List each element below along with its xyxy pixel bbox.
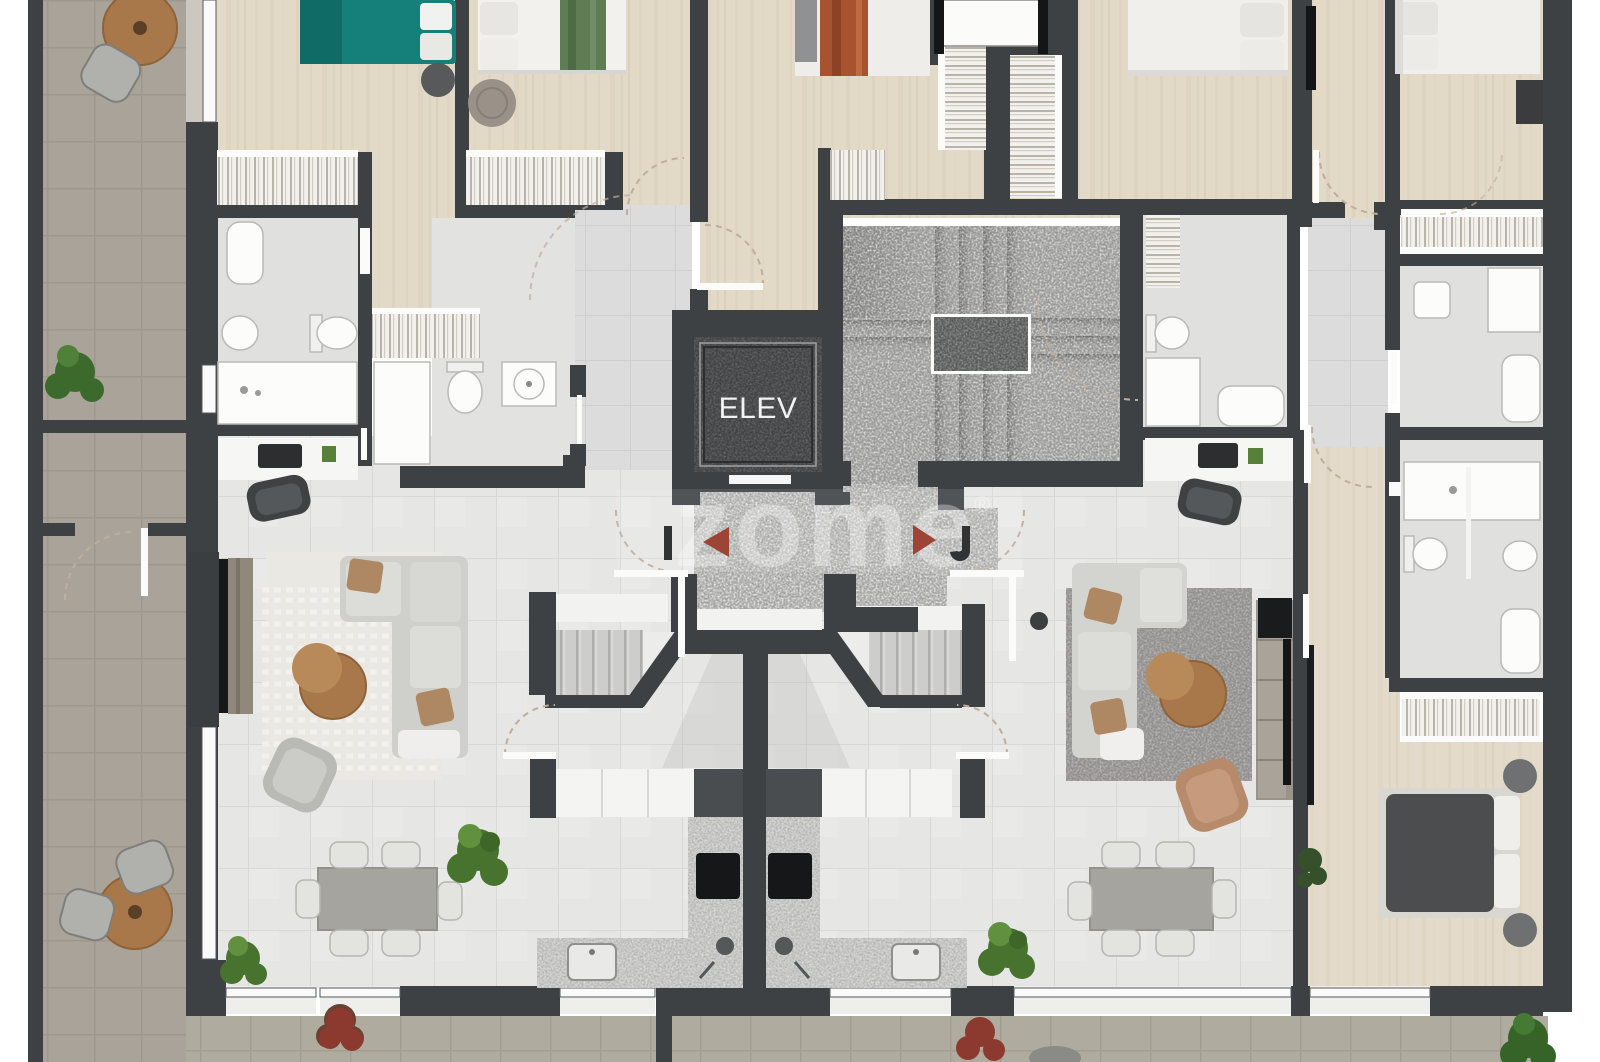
svg-text:®: ® <box>974 492 990 517</box>
svg-text:zome: zome <box>674 464 977 591</box>
svg-text:ELEV: ELEV <box>719 392 798 425</box>
